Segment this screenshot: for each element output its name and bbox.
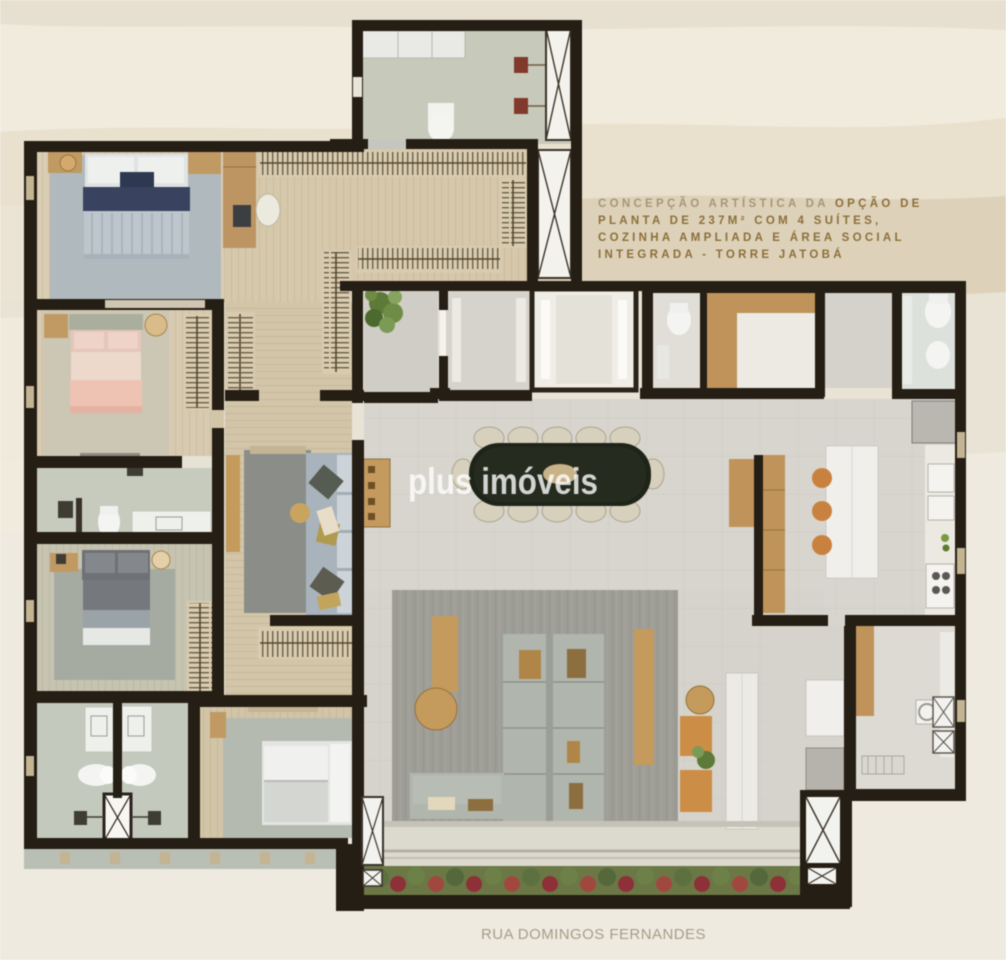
svg-text:CONCEPÇÃO ARTÍSTICA DA OPÇÃO D: CONCEPÇÃO ARTÍSTICA DA OPÇÃO DE [598, 197, 923, 210]
svg-text:RUA DOMINGOS FERNANDES: RUA DOMINGOS FERNANDES [481, 926, 706, 943]
svg-text:COZINHA AMPLIADA E ÁREA SOCIAL: COZINHA AMPLIADA E ÁREA SOCIAL [598, 231, 905, 244]
svg-text:PLANTA DE 237M² COM 4 SUÍTES,: PLANTA DE 237M² COM 4 SUÍTES, [598, 214, 882, 227]
svg-text:plus imóveis: plus imóveis [408, 461, 598, 502]
svg-text:INTEGRADA - TORRE JATOBÁ: INTEGRADA - TORRE JATOBÁ [598, 248, 845, 261]
